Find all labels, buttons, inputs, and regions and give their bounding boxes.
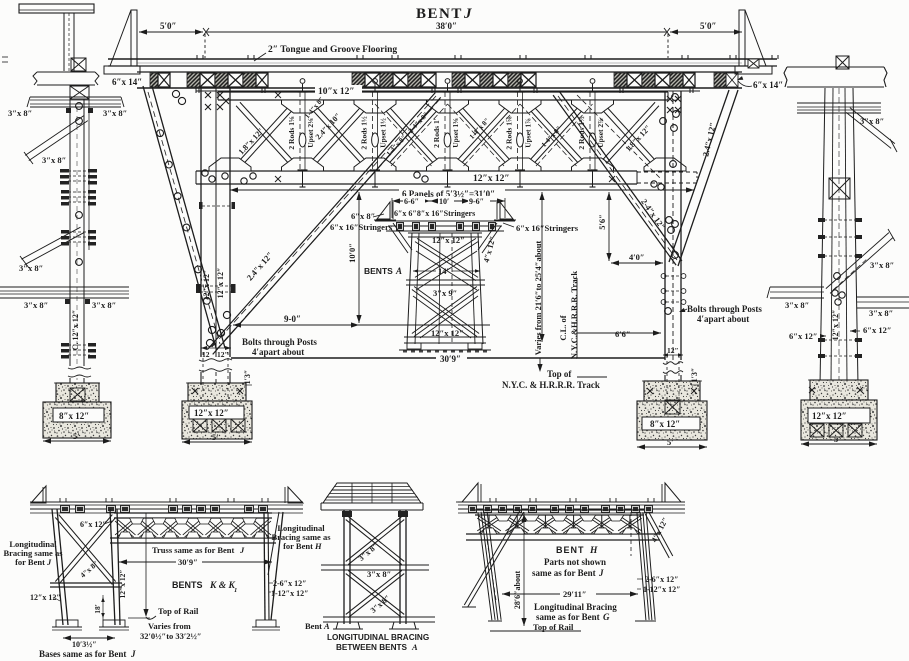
svg-text:29′11″: 29′11″ <box>563 589 587 599</box>
svg-text:6″x 16″Stringers: 6″x 16″Stringers <box>516 223 579 233</box>
svg-text:J: J <box>598 568 604 578</box>
svg-text:12″x 12″: 12″x 12″ <box>118 570 127 599</box>
svg-text:6″x 8″: 6″x 8″ <box>351 211 375 221</box>
svg-text:K & K: K & K <box>209 581 235 591</box>
svg-text:3″x 8″: 3″x 8″ <box>42 155 66 165</box>
svg-text:6″x 14″: 6″x 14″ <box>753 80 783 90</box>
svg-text:3″x 8″: 3″x 8″ <box>785 300 809 310</box>
svg-text:J: J <box>46 557 52 567</box>
svg-text:H: H <box>589 546 598 556</box>
svg-text:12″x 12″: 12″x 12″ <box>432 235 465 245</box>
svg-text:Longitudinal Bracing: Longitudinal Bracing <box>534 602 617 612</box>
svg-text:6″x 12″: 6″x 12″ <box>80 520 107 529</box>
svg-text:6″x 14″: 6″x 14″ <box>112 77 142 87</box>
svg-text:4′apart about: 4′apart about <box>697 314 749 324</box>
svg-text:12″x 12″: 12″x 12″ <box>831 310 840 341</box>
svg-text:6′6″: 6′6″ <box>615 329 631 339</box>
svg-text:Bolts through Posts: Bolts through Posts <box>687 304 762 314</box>
svg-text:Bolts through Posts: Bolts through Posts <box>242 337 317 347</box>
svg-text:1: 1 <box>234 587 237 594</box>
svg-text:Top of Rail: Top of Rail <box>158 606 199 616</box>
svg-text:J: J <box>239 545 245 555</box>
svg-text:1′3″: 1′3″ <box>690 368 699 383</box>
svg-text:18′: 18′ <box>93 604 102 614</box>
svg-text:Upset 1⅞: Upset 1⅞ <box>524 118 533 148</box>
svg-text:8″x 12″: 8″x 12″ <box>59 411 89 421</box>
svg-text:Varies from: Varies from <box>148 621 191 631</box>
svg-text:5′: 5′ <box>667 437 674 447</box>
svg-text:12″: 12″ <box>217 350 229 359</box>
svg-text:N.Y.C.&H.R.R.R. Track: N.Y.C.&H.R.R.R. Track <box>569 271 579 359</box>
svg-text:for Bent: for Bent <box>283 541 313 551</box>
svg-text:H: H <box>314 541 322 551</box>
svg-text:3″x 8″: 3″x 8″ <box>92 300 116 310</box>
svg-text:5′: 5′ <box>212 432 219 442</box>
svg-text:30′9″: 30′9″ <box>440 354 461 364</box>
svg-text:12″: 12″ <box>667 346 679 355</box>
svg-text:10′: 10′ <box>439 197 449 206</box>
svg-text:for Bent: for Bent <box>15 557 45 567</box>
svg-text:A: A <box>395 266 402 276</box>
svg-text:Upset 1½: Upset 1½ <box>379 118 388 148</box>
svg-text:5′: 5′ <box>73 431 80 441</box>
svg-text:5′0″: 5′0″ <box>700 21 717 31</box>
svg-text:2-6″x 12″: 2-6″x 12″ <box>273 579 307 588</box>
svg-text:Bases same as for Bent: Bases same as for Bent <box>39 649 126 659</box>
svg-text:10′3½″: 10′3½″ <box>72 640 97 649</box>
svg-text:Bent: Bent <box>305 621 322 631</box>
svg-text:same as for Bent: same as for Bent <box>536 612 600 622</box>
svg-text:12″x 12″: 12″x 12″ <box>812 411 847 421</box>
svg-text:2 Rods 1⅝: 2 Rods 1⅝ <box>287 116 296 150</box>
svg-text:3″x 8″: 3″x 8″ <box>869 308 893 318</box>
svg-text:same as for Bent: same as for Bent <box>532 568 596 578</box>
svg-text:Upset 1⅜: Upset 1⅜ <box>451 118 460 148</box>
svg-text:3″x 8″: 3″x 8″ <box>860 116 884 126</box>
svg-text:6″x 12″: 6″x 12″ <box>789 331 818 341</box>
svg-text:3″x 8″: 3″x 8″ <box>24 300 48 310</box>
svg-text:14′: 14′ <box>438 266 449 276</box>
svg-text:2 Rods 1′: 2 Rods 1′ <box>432 118 441 148</box>
svg-text:2 Rods 1½: 2 Rods 1½ <box>360 116 369 150</box>
svg-text:5′: 5′ <box>834 434 841 444</box>
svg-text:BENT: BENT <box>556 545 585 555</box>
svg-text:C.L. of: C.L. of <box>558 315 568 340</box>
svg-text:28′6″about: 28′6″about <box>513 571 522 610</box>
svg-text:1-12″x 12″: 1-12″x 12″ <box>643 585 681 594</box>
svg-text:12″x 12″: 12″x 12″ <box>431 328 464 338</box>
svg-text:30′9″: 30′9″ <box>178 557 198 567</box>
svg-text:3″x 8″: 3″x 8″ <box>19 263 43 273</box>
svg-text:10′0″: 10′0″ <box>347 243 357 263</box>
svg-text:J: J <box>463 6 472 22</box>
svg-text:Truss same as for Bent: Truss same as for Bent <box>152 545 234 555</box>
svg-text:2″ Tongue and Groove Flooring: 2″ Tongue and Groove Flooring <box>268 45 397 55</box>
svg-text:12″x 12″: 12″x 12″ <box>194 408 229 418</box>
svg-text:6″x 16″Stringers: 6″x 16″Stringers <box>330 222 393 232</box>
svg-text:BENT: BENT <box>416 6 463 22</box>
svg-text:4′apart about: 4′apart about <box>252 347 304 357</box>
svg-text:A: A <box>411 642 418 652</box>
svg-text:6″x 12″: 6″x 12″ <box>863 325 892 335</box>
svg-text:5′6″: 5′6″ <box>597 214 607 230</box>
svg-text:9-6″: 9-6″ <box>469 197 484 206</box>
svg-text:A: A <box>323 621 330 631</box>
svg-text:5′0″: 5′0″ <box>160 21 177 31</box>
svg-text:N.Y.C. & H.R.R.R. Track: N.Y.C. & H.R.R.R. Track <box>502 380 600 390</box>
svg-text:Top of: Top of <box>547 369 572 379</box>
svg-text:6″x 6″8″x 16″Stringers: 6″x 6″8″x 16″Stringers <box>394 209 475 218</box>
svg-text:3″x 9″: 3″x 9″ <box>433 288 457 298</box>
svg-text:3″x 8″: 3″x 8″ <box>8 108 32 118</box>
svg-text:12″x 12″: 12″x 12″ <box>216 268 225 299</box>
svg-text:Parts not shown: Parts not shown <box>544 557 606 567</box>
svg-text:2 Rods 1⅝: 2 Rods 1⅝ <box>505 116 514 150</box>
svg-text:BENTS: BENTS <box>364 266 393 276</box>
svg-text:10″x 12″: 10″x 12″ <box>318 87 355 97</box>
svg-text:3″x 8″: 3″x 8″ <box>103 108 127 118</box>
svg-text:Varies from 21′6″to 25′4″about: Varies from 21′6″to 25′4″about <box>533 241 543 356</box>
svg-text:8″x 12″: 8″x 12″ <box>650 419 680 429</box>
svg-text:C. 12″x 12″: C. 12″x 12″ <box>71 310 80 351</box>
svg-text:9-0″: 9-0″ <box>284 314 301 324</box>
svg-text:3″x 8″: 3″x 8″ <box>870 260 894 270</box>
svg-text:32′0½″to 33′2½″: 32′0½″to 33′2½″ <box>140 631 202 641</box>
svg-text:38′0″: 38′0″ <box>436 21 457 31</box>
svg-text:6-6″: 6-6″ <box>404 197 419 206</box>
svg-text:BENTS: BENTS <box>172 580 203 590</box>
svg-text:BETWEEN BENTS: BETWEEN BENTS <box>336 643 408 652</box>
svg-text:1-12″x 12″: 1-12″x 12″ <box>271 589 309 598</box>
svg-text:1′3″: 1′3″ <box>243 370 252 385</box>
svg-text:J: J <box>130 649 136 659</box>
svg-text:G: G <box>603 612 610 622</box>
svg-text:Upset 2⅛: Upset 2⅛ <box>306 118 315 148</box>
svg-text:12″x 12″: 12″x 12″ <box>473 174 510 184</box>
svg-text:LONGITUDINAL BRACING: LONGITUDINAL BRACING <box>327 633 429 642</box>
svg-text:4′0″: 4′0″ <box>629 252 645 262</box>
svg-text:12″x 12″: 12″x 12″ <box>30 593 61 602</box>
svg-text:2-6″x 12″: 2-6″x 12″ <box>645 575 679 584</box>
svg-text:3″x 8″: 3″x 8″ <box>367 569 391 579</box>
